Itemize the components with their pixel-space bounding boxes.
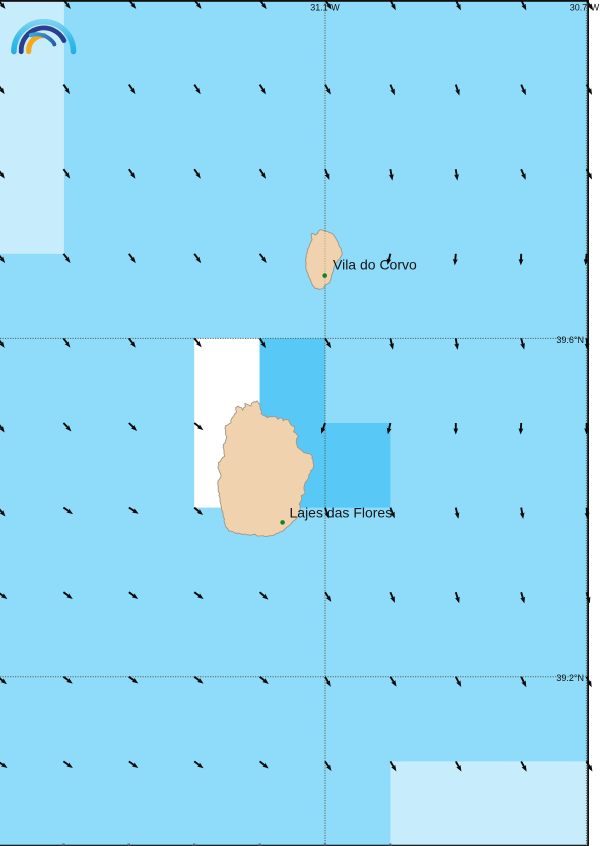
- svg-text:31.1°W: 31.1°W: [310, 3, 340, 13]
- svg-text:30.7°W: 30.7°W: [570, 3, 600, 13]
- svg-text:Lajes das Flores: Lajes das Flores: [290, 505, 393, 521]
- svg-text:39.2°N: 39.2°N: [556, 673, 584, 683]
- svg-text:Vila do Corvo: Vila do Corvo: [333, 257, 417, 273]
- svg-text:39.6°N: 39.6°N: [556, 335, 584, 345]
